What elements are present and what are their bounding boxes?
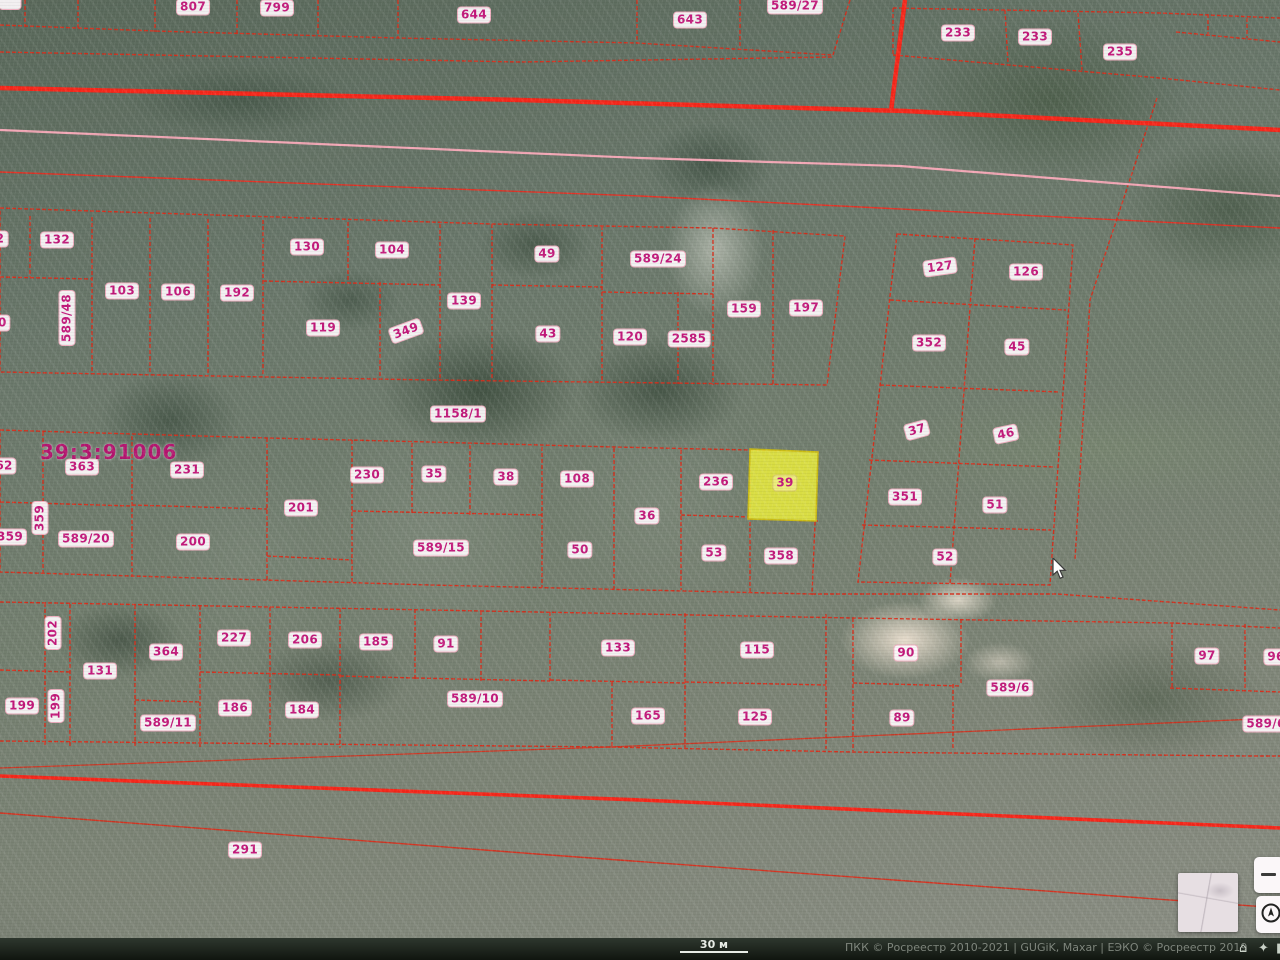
locate-icon (1260, 902, 1280, 926)
parcel-label: 36 (634, 508, 659, 525)
parcel-label: 131 (83, 663, 117, 680)
cadastral-map-app: 807799644643589/27233233235213280589/481… (0, 0, 1280, 960)
parcel-label: 2 (0, 231, 8, 248)
parcel-label: 589/6 (1242, 716, 1280, 733)
scale-bar: 30 м (680, 939, 748, 953)
minus-icon (1261, 873, 1276, 876)
attribution: ПКК © Росреестр 2010-2021 | GUGiK, Maxar… (845, 941, 1247, 954)
parcel-label: 236 (699, 474, 733, 491)
parcel-label: 130 (290, 239, 324, 256)
parcel-label: 89 (889, 710, 914, 727)
scale-label: 30 м (700, 938, 728, 951)
parcel-label: 53 (701, 545, 726, 562)
parcel-label: 126 (1009, 264, 1043, 281)
home-icon[interactable]: ⌂ (1239, 942, 1247, 956)
parcel-label: 231 (170, 462, 204, 479)
parcel-label: 119 (306, 320, 340, 337)
parcel-label: 291 (228, 842, 262, 859)
parcel-label: 52 (932, 549, 957, 566)
parcel-label: 197 (789, 300, 823, 317)
cadastral-quarter-label: 39:3:91006 (40, 440, 177, 464)
parcel-label: 359 (0, 529, 27, 546)
parcel-label: 359 (32, 501, 49, 535)
parcel-label: 115 (740, 642, 774, 659)
parcel-label: 351 (888, 489, 922, 506)
parcel-label: 97 (1194, 648, 1219, 665)
parcel-label: 90 (893, 645, 918, 662)
parcel-label: 202 (45, 616, 62, 650)
parcel-label: 35 (421, 466, 446, 483)
parcel-label: 133 (601, 640, 635, 657)
parcel-label: 358 (764, 548, 798, 565)
parcel-label: 38 (493, 469, 518, 486)
parcel-label: 807 (176, 0, 210, 16)
parcel-label: 589/10 (447, 691, 503, 708)
parcel-label: 103 (105, 283, 139, 300)
panel-toggle-button[interactable] (1254, 857, 1280, 893)
parcel-label: 91 (433, 636, 458, 653)
parcel-label: 1158/1 (430, 406, 486, 423)
parcel-label: 43 (535, 326, 560, 343)
parcel-label: 589/48 (59, 290, 76, 346)
parcel-label: 62 (0, 458, 17, 475)
parcel-label: 589/27 (767, 0, 823, 15)
parcel-label: 589/24 (630, 251, 686, 268)
parcel-label: 799 (260, 0, 294, 17)
footer-bar: 30 м ПКК © Росреестр 2010-2021 | GUGiK, … (0, 938, 1280, 960)
parcel-label: 589/15 (413, 540, 469, 557)
parcel-label: 364 (149, 644, 183, 661)
locate-button[interactable] (1256, 896, 1280, 933)
parcel-label: 125 (738, 709, 772, 726)
cut-right-icon[interactable]: ▮ (1276, 942, 1280, 956)
parcel-label: 200 (176, 534, 210, 551)
parcel-label: 120 (613, 329, 647, 346)
parcel-label: 199 (48, 689, 65, 723)
parcel-label (0, 0, 22, 10)
parcel-label: 132 (40, 232, 74, 249)
parcel-label: 80 (0, 315, 11, 332)
parcel-label: 185 (359, 634, 393, 651)
parcel-label: 51 (982, 497, 1007, 514)
parcel-label: 233 (1018, 29, 1052, 46)
parcel-label: 106 (161, 284, 195, 301)
parcel-boundaries (0, 0, 1280, 960)
parcel-label: 104 (375, 242, 409, 259)
parcel-label: 589/11 (140, 715, 196, 732)
parcel-label: 139 (447, 293, 481, 310)
minimap[interactable] (1178, 873, 1238, 932)
parcel-label: 643 (673, 12, 707, 29)
parcel-label: 352 (912, 335, 946, 352)
parcel-label: 45 (1004, 339, 1029, 356)
parcel-label: 201 (284, 500, 318, 517)
parcel-label: 233 (941, 25, 975, 42)
parcel-label: 235 (1103, 44, 1137, 61)
parcel-label: 230 (350, 467, 384, 484)
parcel-label: 108 (560, 471, 594, 488)
parcel-label: 2585 (668, 331, 711, 348)
parcel-label: 206 (288, 632, 322, 649)
parcel-label: 199 (5, 698, 39, 715)
parcel-label: 184 (285, 702, 319, 719)
navigation-icon[interactable]: ✦ (1258, 942, 1269, 956)
parcel-label: 192 (220, 285, 254, 302)
parcel-label: 159 (727, 301, 761, 318)
parcel-label: 589/20 (58, 531, 114, 548)
selected-parcel-label[interactable]: 39 (772, 475, 797, 492)
parcel-label: 644 (457, 7, 491, 24)
parcel-label: 186 (218, 700, 252, 717)
parcel-label: 589/6 (986, 680, 1033, 697)
parcel-label: 49 (534, 246, 559, 263)
parcel-label: 227 (217, 630, 251, 647)
parcel-label: 165 (631, 708, 665, 725)
parcel-label: 50 (567, 542, 592, 559)
parcel-label: 96 (1263, 649, 1280, 666)
